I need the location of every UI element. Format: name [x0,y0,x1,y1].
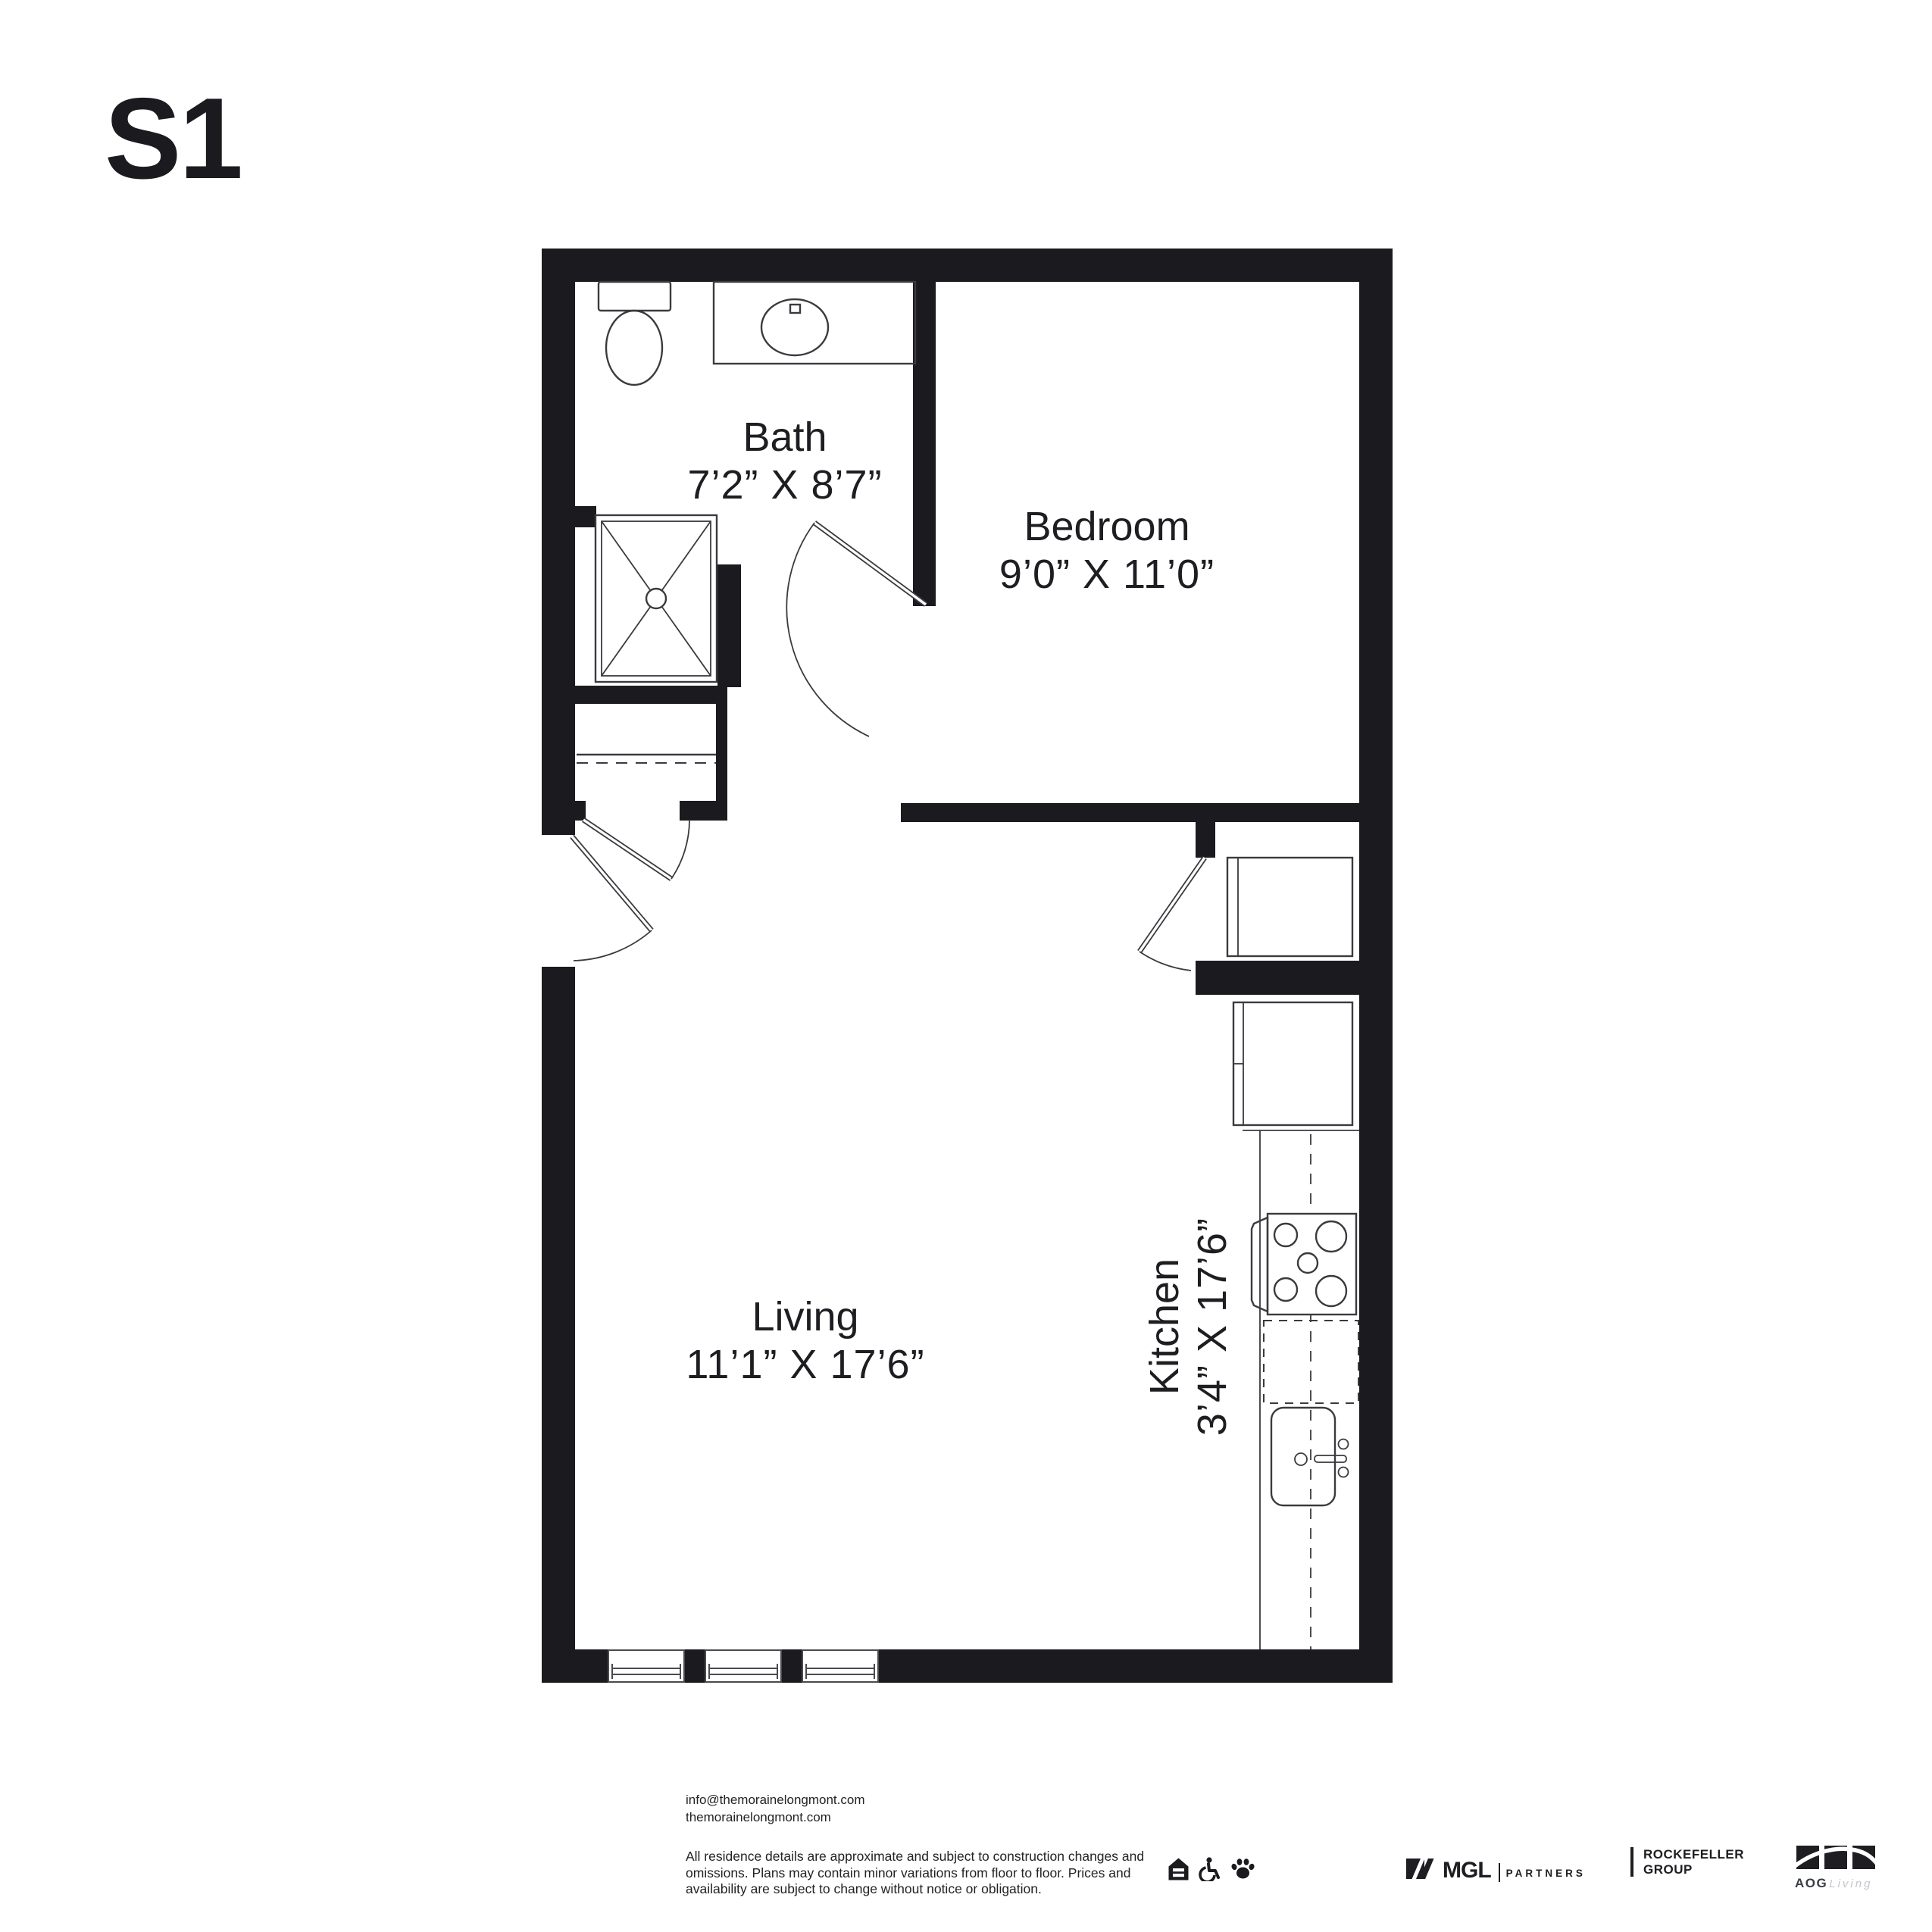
aog-living-logo: AOG Living [1795,1845,1880,1891]
mgl-logo-name: MGL [1443,1858,1491,1884]
shower [596,515,717,682]
room-dimensions: 9’0” X 11’0” [955,551,1258,599]
contact-info: info@themorainelongmont.com themorainelo… [686,1791,865,1826]
wall-bedroom-bottom [901,803,1359,822]
wall-top [542,249,1393,282]
wall-right [1359,249,1393,1683]
wall-left-lower [542,967,575,1683]
aog-logo-name: AOG [1795,1876,1827,1891]
stacked-washer-dryer [1227,858,1352,956]
plan-code-title: S1 [105,73,241,205]
mgl-logo-divider [1499,1863,1500,1882]
legal-disclaimer: All residence details are approximate an… [686,1849,1144,1898]
amenity-icons [1168,1858,1255,1884]
wall-closet-right [716,704,727,802]
mgl-partners-logo: MGL PARTNERS [1406,1859,1586,1882]
refrigerator [1233,1002,1352,1125]
floorplan-drawing [0,0,1932,1932]
window [705,1650,781,1682]
stove [1252,1214,1356,1315]
room-label-bath: Bath 7’2” X 8’7” [633,414,936,509]
window [802,1650,878,1682]
room-dimensions: 3’4” X 17’6” [1189,1160,1236,1493]
bathroom-sink-vanity [714,282,915,364]
equal-housing-icon [1168,1858,1189,1884]
coat-closet [577,755,716,763]
wall-kitchen-closet-stub [1196,822,1215,858]
wall-closet-jamb-left [575,801,586,821]
window [608,1650,684,1682]
wall-below-shower [575,686,727,704]
room-name: Kitchen [1141,1160,1189,1493]
floorplan-page: S1 Bath 7’2” X 8’7” Bedroom 9’0” X 11’0”… [0,0,1932,1932]
toilet [599,282,671,385]
rockefeller-group-logo: ROCKEFELLER GROUP [1630,1847,1744,1877]
room-label-kitchen: Kitchen 3’4” X 17’6” [1141,1160,1236,1493]
wall-stub-bath-left [575,506,596,527]
room-label-bedroom: Bedroom 9’0” X 11’0” [955,503,1258,599]
wheelchair-accessible-icon [1199,1857,1221,1885]
bath-door [786,523,926,736]
wall-closet-jamb-right [680,801,727,821]
kitchen-sink [1271,1408,1349,1505]
room-dimensions: 11’1” X 17’6” [654,1341,957,1389]
rockefeller-line2: GROUP [1643,1862,1744,1877]
windows [608,1650,878,1682]
mgl-logo-icon [1406,1859,1440,1883]
room-label-living: Living 11’1” X 17’6” [654,1293,957,1389]
room-dimensions: 7’2” X 8’7” [633,461,936,509]
wall-kitchen-closet-bottom [1196,961,1359,995]
room-name: Living [654,1293,957,1341]
pet-friendly-paw-icon [1231,1858,1255,1884]
kitchen-closet-door [1140,858,1205,971]
room-name: Bedroom [955,503,1258,551]
room-name: Bath [633,414,936,461]
wall-left-upper [542,249,575,835]
aog-logo-icon [1795,1845,1878,1871]
wall-stub-hall [717,564,741,687]
rockefeller-line1: ROCKEFELLER [1643,1847,1744,1862]
mgl-logo-suffix: PARTNERS [1506,1868,1586,1879]
aog-logo-suffix: Living [1829,1877,1872,1890]
kitchen-counter [1243,1130,1359,1649]
